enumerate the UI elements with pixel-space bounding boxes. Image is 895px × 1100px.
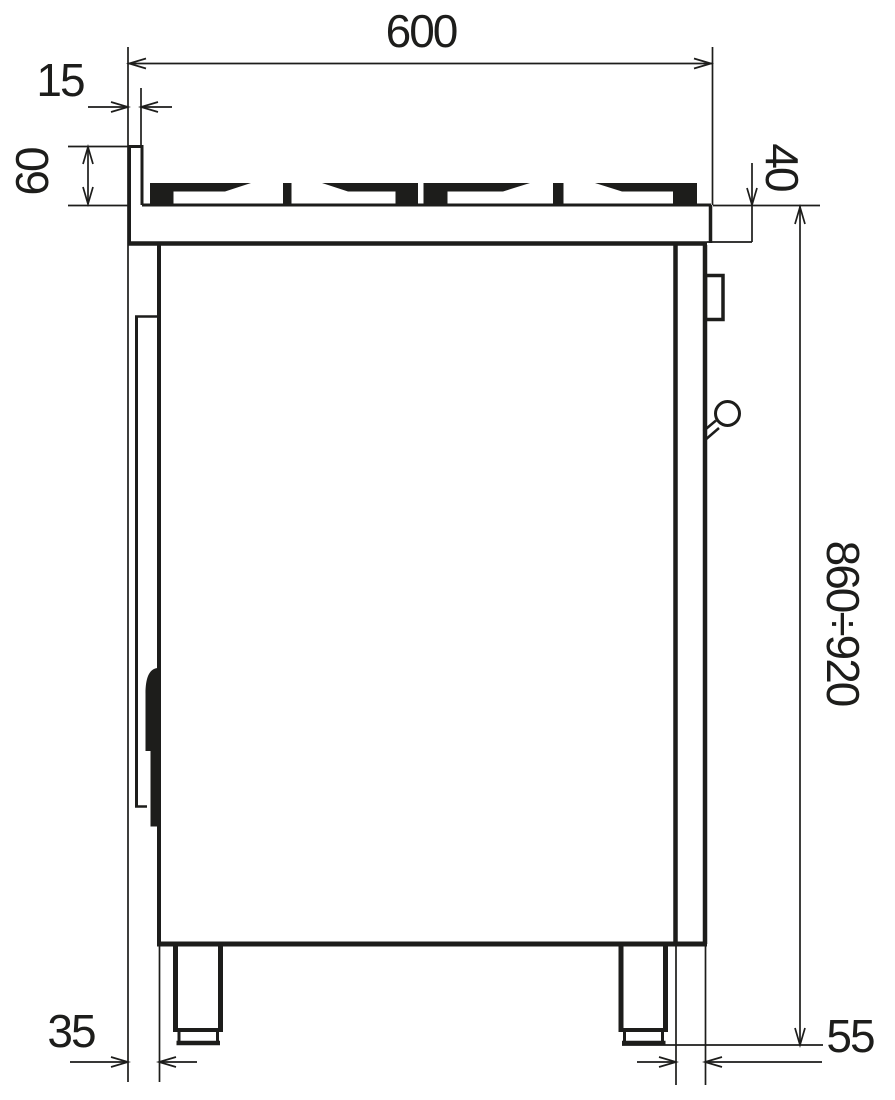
rear-panel <box>135 316 158 827</box>
dim-line <box>707 163 752 242</box>
right-foot-leg <box>621 946 666 1030</box>
dim-top-thickness-40: 40 <box>707 143 820 242</box>
dim-label-back-offset: 15 <box>36 54 84 106</box>
extension-lines <box>68 147 128 206</box>
front-details <box>704 276 740 441</box>
grate-segment <box>322 183 418 204</box>
dim-label-lip-height: 60 <box>6 148 58 196</box>
dim-front-foot-inset-55: 55 <box>637 1010 874 1067</box>
oven-body <box>157 242 707 944</box>
cooker-side-elevation-drawing: 600 15 60 40 860÷920 35 <box>0 0 895 1100</box>
grate-segment <box>424 183 531 204</box>
dim-height-860-920: 860÷920 <box>622 206 869 1045</box>
cooktop-back-lip <box>130 147 143 244</box>
cooktop-profile <box>128 147 711 244</box>
grate-center-support <box>283 183 292 204</box>
left-foot-leg <box>176 946 221 1030</box>
grate-left-segment <box>150 183 251 204</box>
grate-center-support <box>553 183 564 204</box>
dim-label-height-range: 860÷920 <box>817 541 869 706</box>
burner-grates <box>150 183 697 204</box>
extension-lines <box>128 47 713 1085</box>
dim-back-offset-15: 15 <box>36 54 172 146</box>
dim-label-top-thickness: 40 <box>756 143 808 191</box>
grate-right-segment <box>595 183 697 204</box>
technical-drawing-page: 600 15 60 40 860÷920 35 <box>0 0 895 1100</box>
adjustable-feet <box>173 946 668 1043</box>
door-handle-knob <box>716 402 740 426</box>
rear-pipe-detail <box>146 668 158 827</box>
dim-width-600: 600 <box>128 5 712 69</box>
side-bracket <box>706 276 724 320</box>
dim-label-front-foot-inset: 55 <box>826 1010 874 1062</box>
dim-label-back-foot-inset: 35 <box>47 1005 95 1057</box>
dim-label-width: 600 <box>386 5 457 57</box>
dim-lip-height-60: 60 <box>6 147 128 206</box>
